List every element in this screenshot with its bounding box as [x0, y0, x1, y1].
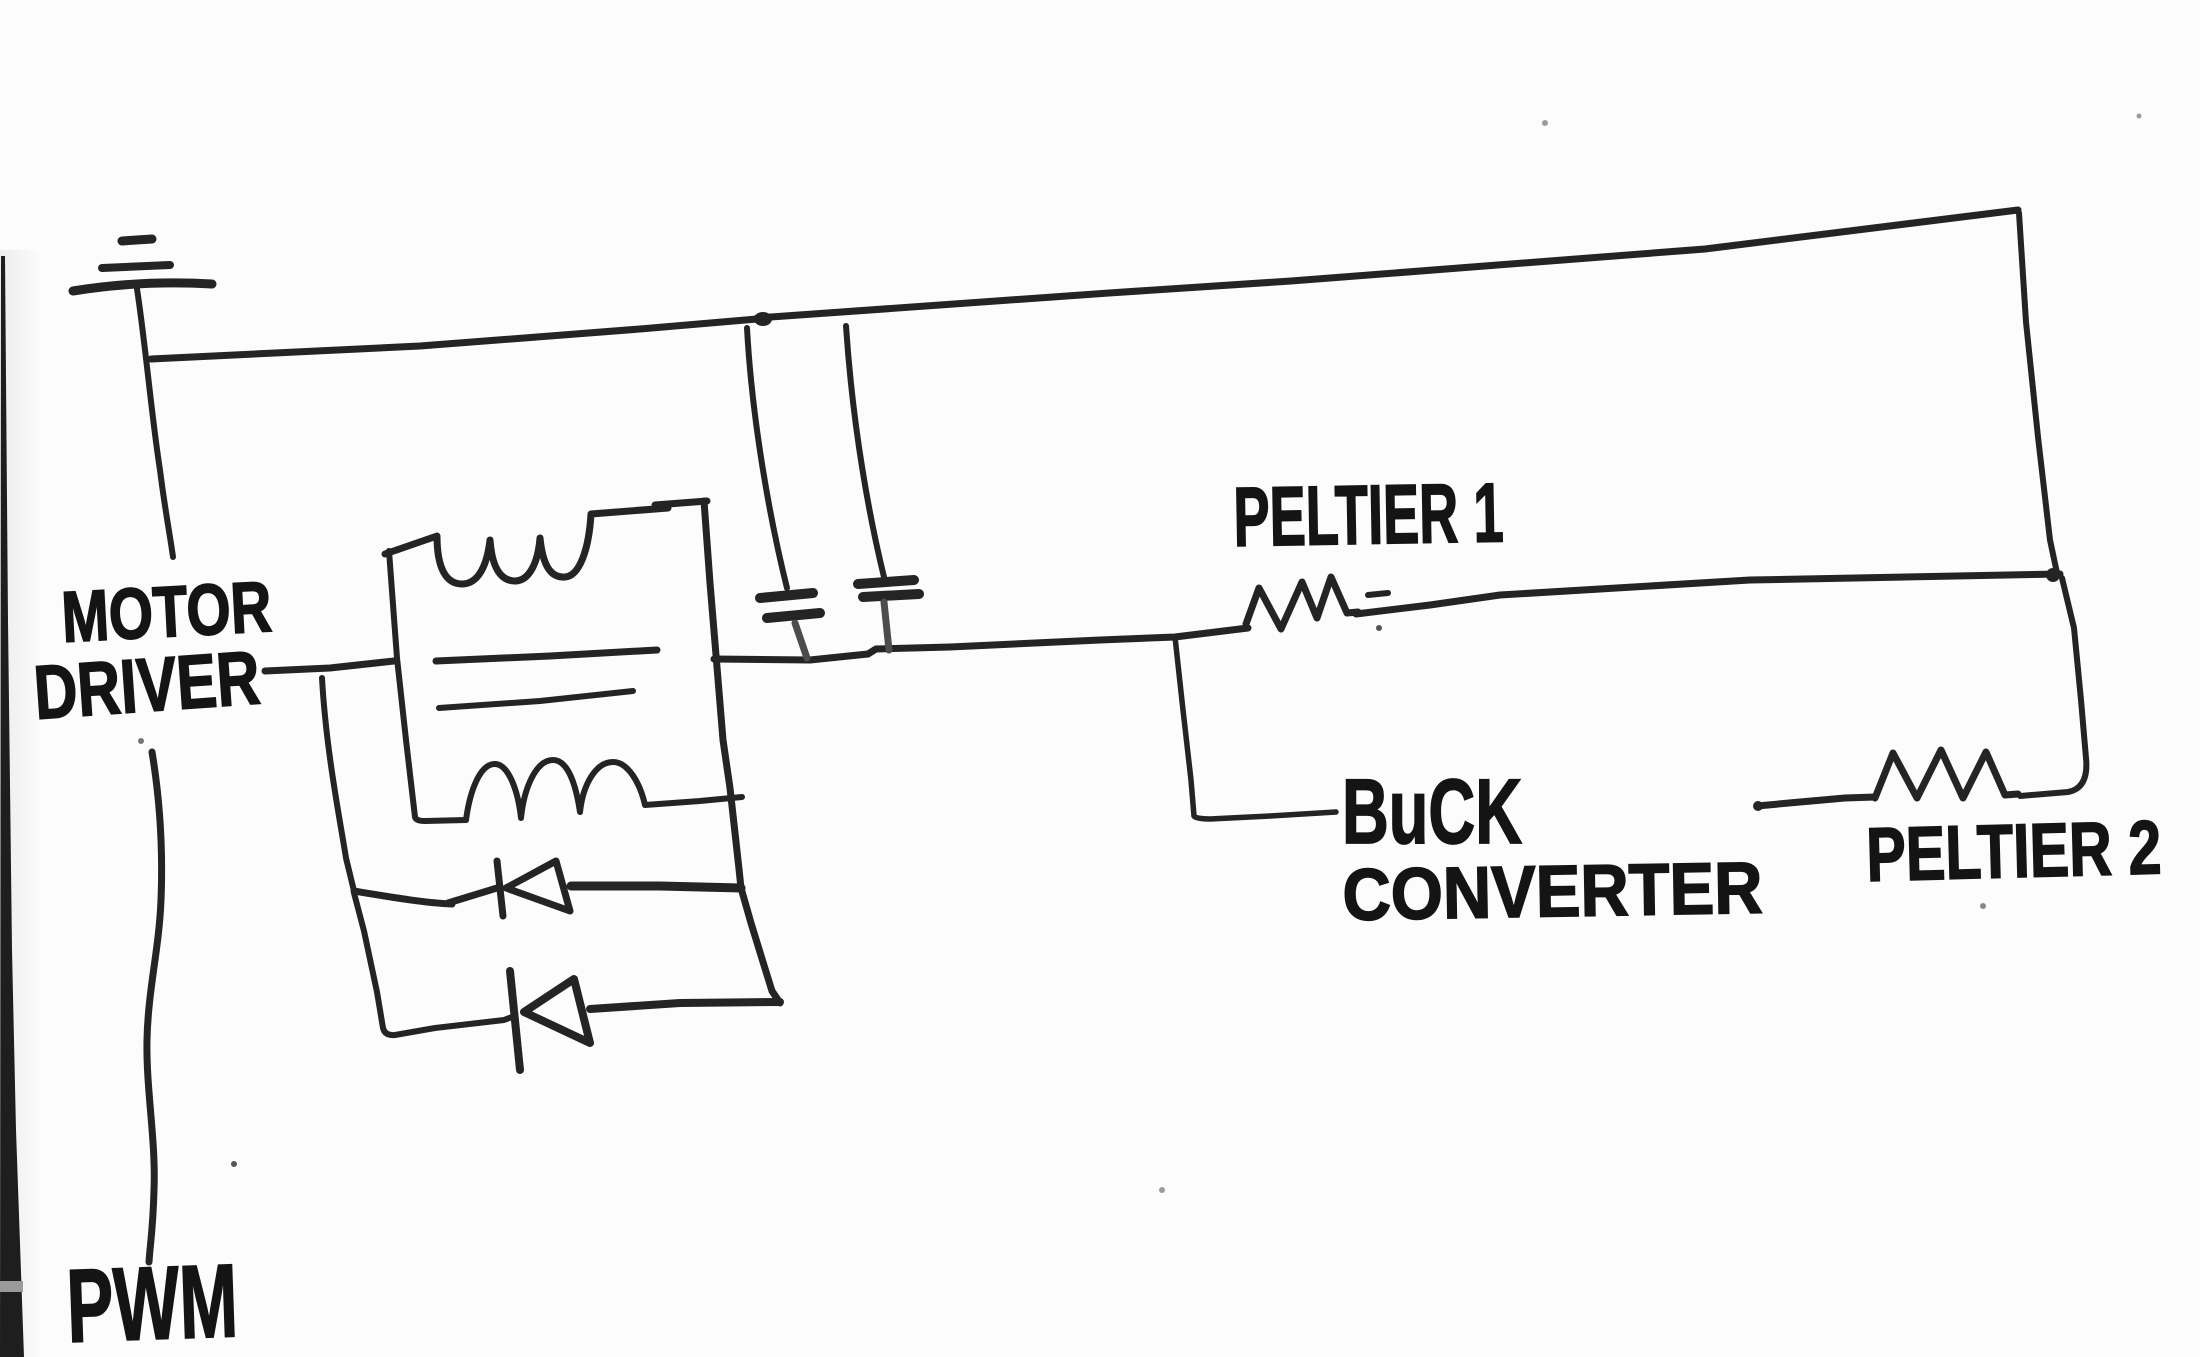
svg-text:PELTIER 2: PELTIER 2 [1865, 805, 2162, 898]
svg-text:DRIVER: DRIVER [31, 635, 262, 736]
svg-text:BuCK: BuCK [1342, 761, 1522, 863]
svg-text:CONVERTER: CONVERTER [1342, 848, 1763, 936]
svg-text:PELTIER 1: PELTIER 1 [1233, 465, 1505, 564]
svg-text:PWM: PWM [65, 1243, 240, 1357]
